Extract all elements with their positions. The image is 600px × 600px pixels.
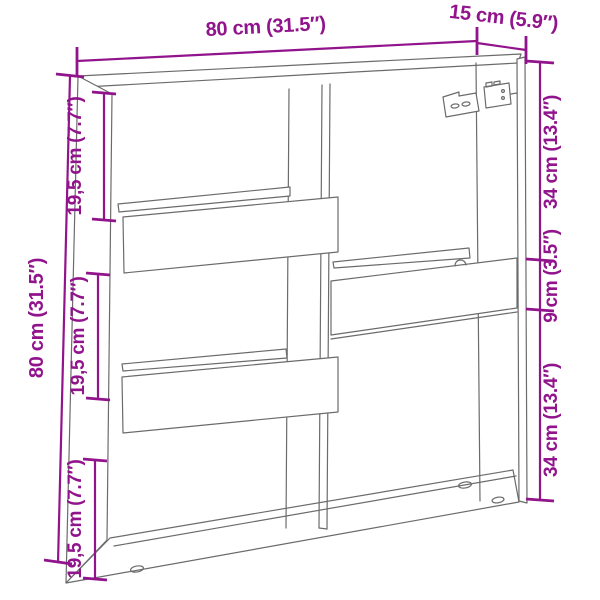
dim-tick bbox=[526, 61, 554, 63]
dim-label-right-section-1: 34 cm (13.4″) bbox=[541, 95, 562, 209]
dim-label-right-section-2: 9 cm (3.5″) bbox=[541, 229, 562, 322]
dim-label-top-width: 80 cm (31.5″) bbox=[205, 13, 326, 41]
dim-label-left-section-1: 19,5 cm (7.7″) bbox=[65, 97, 86, 216]
dim-label-left-section-3: 19,5 cm (7.7″) bbox=[65, 460, 86, 579]
dim-tick bbox=[92, 92, 116, 94]
dim-label-left-height: 80 cm (31.5″) bbox=[26, 258, 48, 378]
cabinet-right-panel bbox=[517, 57, 527, 503]
dim-tick bbox=[56, 74, 84, 77]
right-shelf-rail bbox=[331, 258, 517, 335]
dim-tick bbox=[92, 219, 116, 221]
right-shelf-board bbox=[333, 248, 470, 268]
dim-label-top-depth: 15 cm (5.9″) bbox=[448, 1, 559, 35]
cabinet-top-panel bbox=[78, 54, 521, 87]
dim-tick bbox=[86, 273, 110, 275]
dim-tick bbox=[83, 459, 107, 461]
divider-back-edge bbox=[286, 89, 289, 528]
cabinet-line-art bbox=[66, 54, 527, 583]
dimension-diagram: 80 cm (31.5″) 15 cm (5.9″) 80 cm (31.5″)… bbox=[0, 0, 600, 600]
dim-tick bbox=[86, 398, 110, 400]
dim-line-top-width bbox=[77, 41, 477, 61]
dim-line-top-depth bbox=[477, 43, 526, 50]
dim-tick bbox=[526, 499, 554, 501]
dim-label-left-section-2: 19,5 cm (7.7″) bbox=[68, 277, 89, 396]
wall-bracket-right bbox=[484, 81, 517, 108]
divider-front-face bbox=[319, 84, 330, 529]
cabinet-drawing-svg: 80 cm (31.5″) 15 cm (5.9″) 80 cm (31.5″)… bbox=[0, 0, 600, 600]
dim-tick bbox=[83, 578, 107, 580]
wall-bracket-left bbox=[443, 92, 479, 117]
dim-label-right-section-3: 34 cm (13.4″) bbox=[541, 363, 562, 477]
